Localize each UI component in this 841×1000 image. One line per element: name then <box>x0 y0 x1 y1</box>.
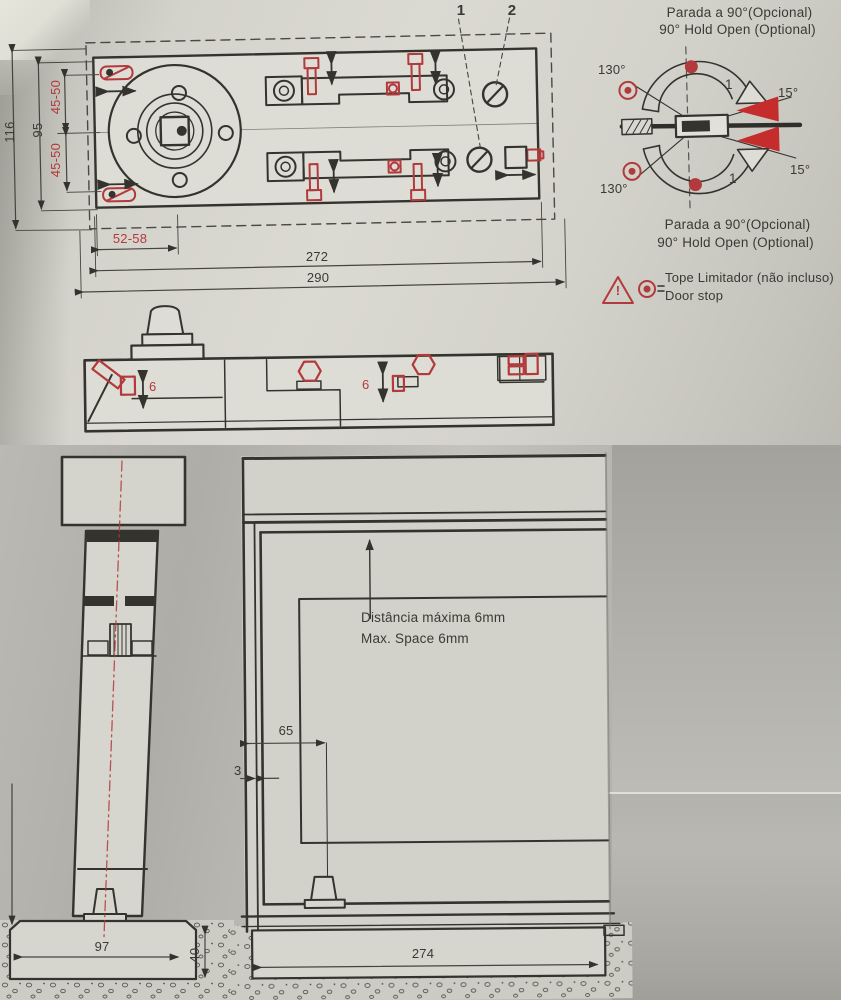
angle-15-bottom-label: 15° <box>790 162 826 178</box>
dim-pivot-offset-label: 65 <box>268 723 304 739</box>
plan-view-drawing <box>12 17 567 299</box>
hold-open-note-bottom-line2: 90° Hold Open (Optional) <box>638 235 833 252</box>
dim-body-height-label: 95 <box>30 112 46 148</box>
dim-offset-bottom-label: 45-50 <box>48 140 64 180</box>
dim-offset-top-label: 45-50 <box>48 77 64 117</box>
callout-valve-1: 1 <box>454 2 468 21</box>
max-space-note-line1: Distância máxima 6mm <box>361 610 571 627</box>
dim-box-width-label: 97 <box>80 939 124 955</box>
angle-130-bottom-label: 130° <box>600 181 642 197</box>
max-space-arrow <box>370 540 371 618</box>
dim-overall-length-label: 290 <box>293 270 343 286</box>
dim-box-length-label: 274 <box>398 946 448 962</box>
hold-open-note-bottom-line1: Parada a 90°(Opcional) <box>640 217 835 234</box>
warning-exclamation-glyph: ! <box>611 283 625 299</box>
dim-body-length-label: 272 <box>292 249 342 265</box>
side-adjust-left-label: 6 <box>149 379 165 395</box>
hold-open-note-top-line1: Parada a 90°(Opcional) <box>642 5 837 22</box>
arc-label-bottom: 1 <box>729 171 745 188</box>
dim-box-depth-label: 40 <box>187 937 203 973</box>
hold-open-note-top-line2: 90° Hold Open (Optional) <box>640 22 835 39</box>
door-stop-note-line1: Tope Limitador (não incluso) <box>665 270 841 286</box>
dim-overall-height-label: 116 <box>2 114 18 150</box>
swing-diagram-drawing <box>618 44 802 213</box>
photographed-instruction-sheet: 116 95 45-50 45-50 52-58 272 290 1 2 Par… <box>0 0 841 1000</box>
side-adjust-right-label: 6 <box>362 377 378 393</box>
callout-valve-2: 2 <box>505 2 519 21</box>
angle-130-top-label: 130° <box>598 62 640 78</box>
angle-15-top-label: 15° <box>778 85 814 101</box>
dim-spindle-offset-label: 52-58 <box>104 231 156 247</box>
door-stop-note-line2: Door stop <box>665 288 841 304</box>
door-section-drawing <box>0 457 234 1000</box>
technical-drawing-linework <box>0 0 841 1000</box>
side-view-drawing <box>84 301 554 432</box>
dim-side-gap-label: 3 <box>234 763 248 779</box>
arc-label-top: 1 <box>725 77 741 94</box>
max-space-note-line2: Max. Space 6mm <box>361 631 571 648</box>
